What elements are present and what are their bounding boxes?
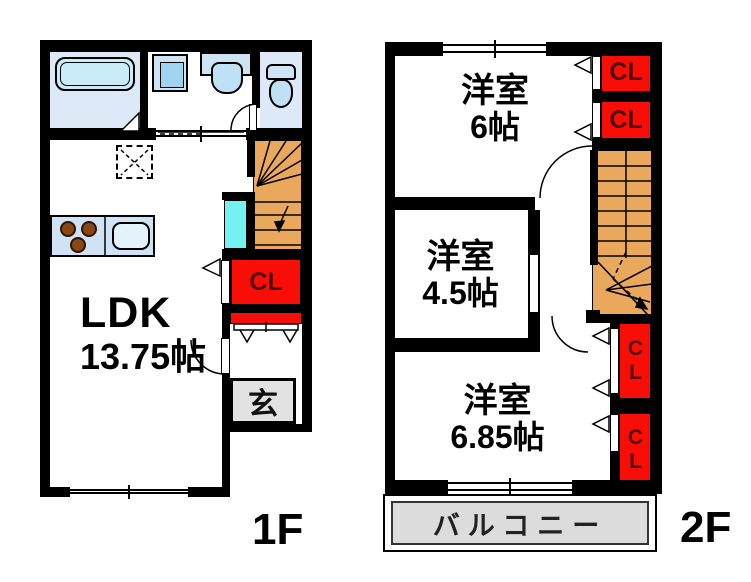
f2-closet-2-label: CL <box>609 106 642 135</box>
f2-closet-4-door-leaf <box>610 414 619 452</box>
f1-wall-right <box>302 40 312 432</box>
f2-sliding-door-room45 <box>528 255 540 312</box>
floor2-label: 2F <box>680 503 731 553</box>
ldk-name: LDK <box>80 290 260 337</box>
toilet-bowl <box>269 79 293 108</box>
washbasin-bowl <box>211 62 243 94</box>
f1-wall-stairs-bottom <box>255 250 302 258</box>
f2-closet-4: CL <box>618 412 652 488</box>
f1-sliding-door-washroom <box>156 128 246 140</box>
room-bottom-size: 6.85帖 <box>400 420 595 456</box>
entrance-genkan: 玄 <box>230 378 296 424</box>
f1-wall-top <box>40 40 312 52</box>
f2-room685-door-arc <box>552 316 588 352</box>
f1-toilet-door-leaf <box>249 104 257 131</box>
f2-closet-3-label: CL <box>623 337 647 385</box>
balcony: バルコニー <box>391 501 649 545</box>
f2-room6-door-arc <box>540 146 592 198</box>
f2-closet-2-door-leaf <box>592 102 601 138</box>
f1-wall-cyan-top <box>222 192 255 200</box>
room-top-name: 洋室 <box>415 72 575 110</box>
toilet-tank <box>266 64 296 80</box>
f1-wall-left <box>40 40 50 497</box>
f1-window-bottom <box>70 487 188 497</box>
ldk-size: 13.75帖 <box>80 337 260 377</box>
f2-window-top <box>443 42 546 56</box>
f2-closet-1-label: CL <box>609 58 642 87</box>
f2-wall-hall-bottom-stub <box>586 310 600 323</box>
f1-wall-bath-wash <box>140 52 148 133</box>
refrigerator-space <box>116 145 153 179</box>
f2-staircase <box>592 150 652 315</box>
balcony-label: バルコニー <box>433 504 607 543</box>
f2-wall-room6-bottom <box>385 197 535 210</box>
floorplan-canvas: CL 玄 LDK 13.75帖 1F CL CL CL CL <box>0 0 751 582</box>
entrance-label: 玄 <box>248 379 278 423</box>
f2-closet-1-door-leaf <box>592 56 601 90</box>
f2-wall-above-stairs <box>592 140 652 150</box>
room-top-label: 洋室 6帖 <box>415 72 575 146</box>
ldk-room-label: LDK 13.75帖 <box>80 290 260 377</box>
f2-wall-stairs-left <box>590 150 598 265</box>
room-bottom-name: 洋室 <box>400 382 595 420</box>
room-mid-size: 4.5帖 <box>393 276 528 312</box>
f1-wall-stair-left-lower <box>247 200 255 250</box>
f2-closet-2: CL <box>600 100 652 140</box>
f2-closet-3-door-leaf <box>610 328 619 394</box>
room-mid-name: 洋室 <box>393 238 528 276</box>
floor1-label: 1F <box>252 505 303 555</box>
f2-wall-right <box>652 42 662 490</box>
pipe-space <box>224 200 247 249</box>
kitchen-sink <box>112 222 150 250</box>
f1-wall-bay-bottom <box>222 424 312 432</box>
bathtub <box>55 57 135 91</box>
f2-wall-cl-divider-top <box>592 93 652 100</box>
f1-staircase <box>253 140 302 250</box>
room-bottom-label: 洋室 6.85帖 <box>400 382 595 456</box>
f1-wall-wash-toilet <box>252 52 260 108</box>
f2-closet-3: CL <box>618 322 652 400</box>
room-top-size: 6帖 <box>415 110 575 146</box>
f2-window-bottom <box>448 480 572 494</box>
room-mid-label: 洋室 4.5帖 <box>393 238 528 312</box>
f2-wall-room45-bottom <box>385 338 540 352</box>
f2-wall-stairs-bottom <box>592 315 662 323</box>
f1-wall-stair-left-upper <box>247 140 255 177</box>
washing-machine <box>152 54 188 92</box>
f2-closet-1: CL <box>600 52 652 93</box>
f2-wall-cl-divider-bottom <box>610 400 652 412</box>
f2-closet-4-label: CL <box>623 426 647 474</box>
f1-closet-door-triangle <box>203 259 220 276</box>
